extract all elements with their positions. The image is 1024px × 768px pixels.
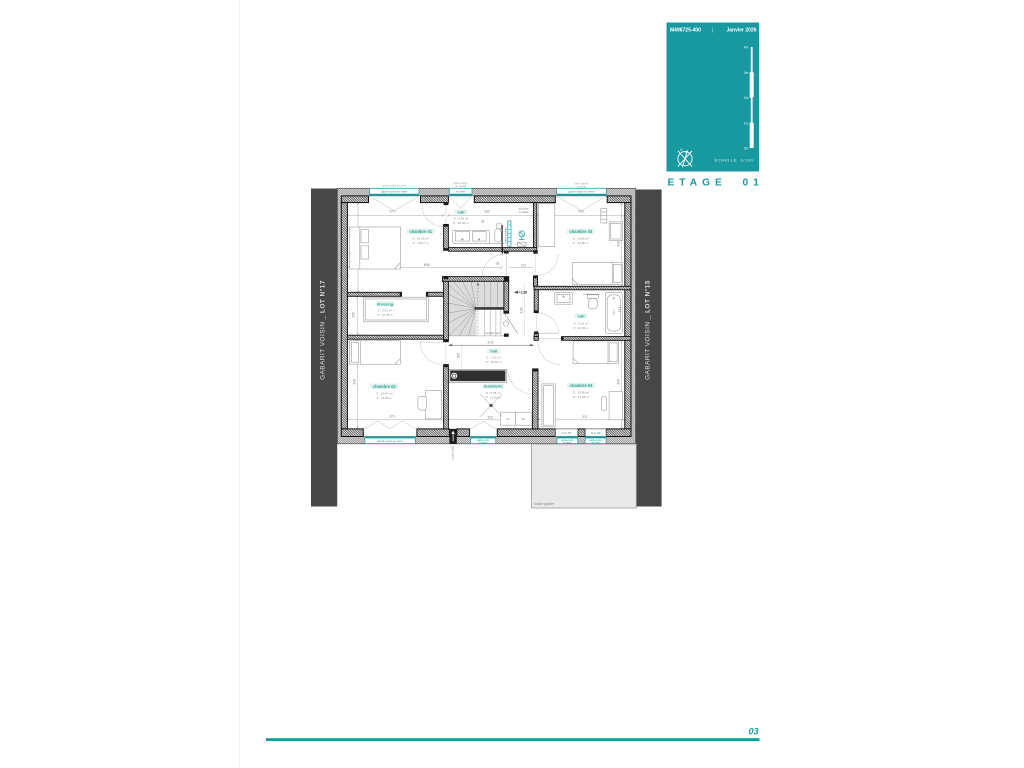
svg-text:P : 11,60 m: P : 11,60 m <box>486 395 502 399</box>
svg-text:sdd: sdd <box>458 209 466 214</box>
svg-text:gaine d'eau: gaine d'eau <box>451 446 455 460</box>
svg-text:en verre: en verre <box>456 191 466 194</box>
svg-text:332: 332 <box>487 416 493 420</box>
svg-text:H.A. 50: H.A. 50 <box>562 431 572 435</box>
svg-text:P : 10,78 m: P : 10,78 m <box>377 313 393 317</box>
svg-text:GABARIT VOISIN _ LOT N°15: GABARIT VOISIN _ LOT N°15 <box>643 280 651 380</box>
svg-text:S : 6,28 m²: S : 6,28 m² <box>454 217 469 221</box>
svg-text:chambre 04: chambre 04 <box>570 383 593 388</box>
svg-text:un vantail: un vantail <box>455 185 466 188</box>
svg-text:608¹: 608¹ <box>424 263 430 267</box>
svg-text:|: | <box>712 28 713 34</box>
svg-text:S : 6,10 m²: S : 6,10 m² <box>574 322 589 326</box>
svg-text:181: 181 <box>612 310 616 315</box>
svg-text:4,60: 4,60 <box>519 307 523 313</box>
svg-text:en verre: en verre <box>563 441 572 444</box>
svg-text:hall: hall <box>490 348 497 353</box>
svg-text:3,02: 3,02 <box>487 341 493 345</box>
svg-text:comble: comble <box>519 210 529 214</box>
svg-text:chambre 02: chambre 02 <box>373 384 396 389</box>
svg-text:90: 90 <box>496 262 500 266</box>
svg-text:332: 332 <box>484 210 490 214</box>
svg-text:WL: WL <box>521 417 526 421</box>
svg-text:SL: SL <box>506 417 510 421</box>
svg-text:101: 101 <box>521 263 527 267</box>
svg-text:buanderie: buanderie <box>484 384 503 389</box>
svg-text:P : 14,80 m: P : 14,80 m <box>377 396 393 400</box>
svg-text:S : 6,78 m²: S : 6,78 m² <box>486 391 501 395</box>
svg-text:4m: 4m <box>744 46 749 50</box>
svg-text:garde-corps: garde-corps <box>561 439 574 442</box>
svg-text:GABARIT VOISIN _ LOT N°17: GABARIT VOISIN _ LOT N°17 <box>319 280 327 380</box>
svg-text:346: 346 <box>352 379 356 385</box>
svg-text:90: 90 <box>481 220 485 224</box>
svg-text:garde-corps en verre: garde-corps en verre <box>377 439 403 443</box>
svg-text:chambre 01: chambre 01 <box>409 229 432 234</box>
svg-text:+2,88: +2,88 <box>519 291 528 295</box>
svg-text:en verre: en verre <box>591 441 600 444</box>
svg-text:garde-corps en verre: garde-corps en verre <box>381 190 407 194</box>
svg-text:en verre: en verre <box>577 185 587 188</box>
svg-text:toiture gravier: toiture gravier <box>535 502 555 506</box>
svg-text:sdb: sdb <box>578 313 586 318</box>
svg-text:garde-corps: garde-corps <box>589 439 602 442</box>
svg-text:garde-corps en verre: garde-corps en verre <box>569 190 595 194</box>
svg-text:P : 16,06 m: P : 16,06 m <box>486 360 502 364</box>
svg-text:S : 13,34 m²: S : 13,34 m² <box>376 391 392 395</box>
svg-text:03: 03 <box>748 727 758 737</box>
svg-text:346: 346 <box>616 379 620 385</box>
svg-text:P : 19,67 m: P : 19,67 m <box>413 241 429 245</box>
svg-text:1m: 1m <box>744 121 749 125</box>
svg-text:S : 11,66 m²: S : 11,66 m² <box>573 236 589 240</box>
svg-text:Janvier 2026: Janvier 2026 <box>726 28 756 34</box>
svg-text:S : 14,05 m²: S : 14,05 m² <box>413 236 429 240</box>
svg-text:3m: 3m <box>744 71 749 75</box>
svg-text:P : 10,36 m: P : 10,36 m <box>573 326 589 330</box>
svg-text:2m: 2m <box>744 96 749 100</box>
svg-text:P : 13,66 m: P : 13,66 m <box>573 395 589 399</box>
svg-text:156: 156 <box>352 312 356 318</box>
svg-text:S : 11,66 m²: S : 11,66 m² <box>573 391 589 395</box>
svg-text:371¹: 371¹ <box>389 415 395 419</box>
svg-text:337: 337 <box>582 415 588 419</box>
svg-text:M496725-400: M496725-400 <box>670 28 701 34</box>
svg-text:dressing: dressing <box>377 301 394 306</box>
svg-text:ECHELLE 1/100: ECHELLE 1/100 <box>715 157 754 162</box>
svg-text:S : 3,91 m²: S : 3,91 m² <box>378 309 393 313</box>
svg-text:H.A. 50: H.A. 50 <box>591 431 601 435</box>
svg-text:P : 13,86 m: P : 13,86 m <box>573 241 589 245</box>
svg-text:ETAGE 01: ETAGE 01 <box>668 178 764 189</box>
svg-text:garde-corps en verre: garde-corps en verre <box>383 185 407 188</box>
svg-text:P : 10,66 m: P : 10,66 m <box>453 221 469 225</box>
svg-text:205: 205 <box>457 353 461 359</box>
svg-text:escalier haut: escalier haut <box>485 331 500 335</box>
svg-text:en verre: en verre <box>479 441 488 444</box>
svg-text:316: 316 <box>616 241 620 247</box>
svg-text:sèche serviette: sèche serviette <box>505 227 508 244</box>
svg-text:chambre 03: chambre 03 <box>569 229 592 234</box>
svg-text:0m: 0m <box>744 147 749 151</box>
svg-text:S : 7,31 m²: S : 7,31 m² <box>486 356 501 360</box>
svg-text:garde-corps: garde-corps <box>477 439 490 442</box>
